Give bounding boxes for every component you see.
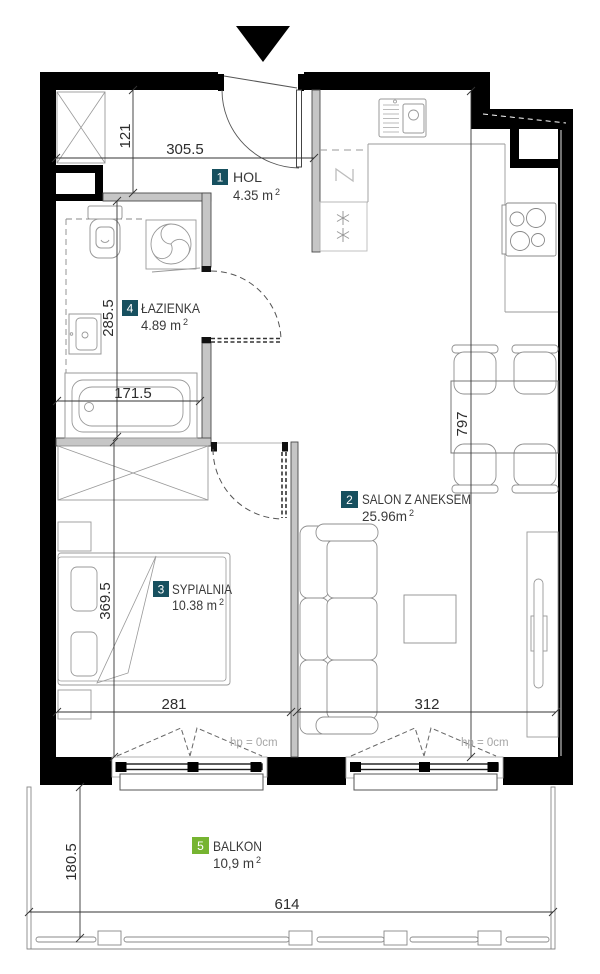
svg-text:hp = 0cm: hp = 0cm [230, 737, 278, 749]
svg-text:2: 2 [346, 493, 353, 507]
svg-text:2: 2 [275, 187, 280, 197]
svg-text:285.5: 285.5 [100, 299, 117, 337]
svg-text:BALKON: BALKON [213, 838, 262, 854]
svg-text:1: 1 [217, 171, 224, 185]
svg-text:121: 121 [117, 123, 134, 148]
svg-text:614: 614 [274, 896, 299, 913]
svg-text:2: 2 [256, 855, 261, 865]
svg-text:hp = 0cm: hp = 0cm [461, 737, 509, 749]
svg-text:4.89 m: 4.89 m [141, 318, 181, 333]
svg-text:SALON Z ANEKSEM: SALON Z ANEKSEM [362, 491, 471, 507]
svg-text:305.5: 305.5 [166, 141, 204, 158]
svg-text:2: 2 [409, 508, 414, 518]
svg-text:SYPIALNIA: SYPIALNIA [172, 581, 233, 597]
svg-text:25.96m: 25.96m [362, 509, 407, 524]
svg-text:180.5: 180.5 [63, 843, 80, 881]
svg-text:2: 2 [183, 317, 188, 327]
svg-text:369.5: 369.5 [97, 582, 114, 620]
svg-text:2: 2 [219, 597, 224, 607]
svg-text:171.5: 171.5 [114, 385, 152, 402]
svg-text:ŁAZIENKA: ŁAZIENKA [141, 300, 201, 316]
svg-text:281: 281 [161, 696, 186, 713]
svg-text:312: 312 [414, 696, 439, 713]
svg-text:10,9 m: 10,9 m [213, 856, 254, 871]
svg-text:4: 4 [127, 302, 134, 316]
svg-text:4.35 m: 4.35 m [233, 188, 273, 203]
svg-text:3: 3 [158, 583, 165, 597]
svg-text:5: 5 [197, 839, 204, 853]
svg-text:10.38 m: 10.38 m [172, 598, 217, 613]
svg-text:HOL: HOL [233, 169, 262, 185]
svg-text:797: 797 [454, 411, 471, 436]
